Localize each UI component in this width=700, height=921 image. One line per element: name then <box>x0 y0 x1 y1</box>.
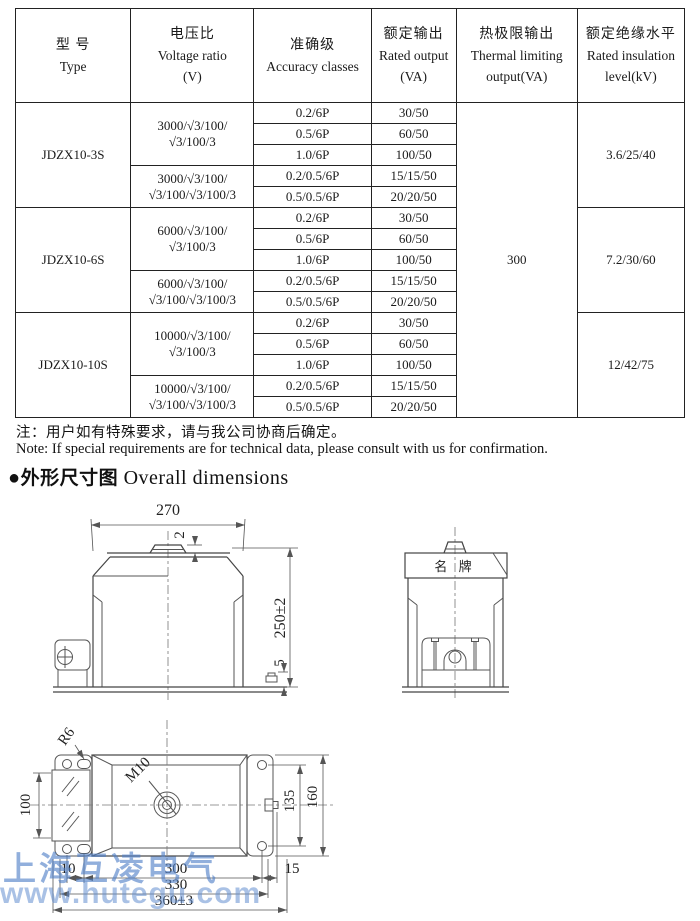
base-thickness-dimension: 5 <box>272 659 288 694</box>
accuracy-cell: 1.0/6P <box>254 145 371 166</box>
output-cell: 60/50 <box>371 229 456 250</box>
accuracy-cell: 1.0/6P <box>254 250 371 271</box>
svg-text:270: 270 <box>156 502 180 519</box>
dim-15: 15 <box>285 861 300 877</box>
spec-table: 型 号 Type 电压比 Voltage ratio (V) 准确级 Accur… <box>15 8 685 418</box>
accuracy-cell: 0.2/6P <box>254 208 371 229</box>
table-row: JDZX10-6S6000/√3/100/√3/100/30.2/6P30/50… <box>16 208 685 229</box>
type-cell: JDZX10-10S <box>16 313 131 418</box>
svg-text:2: 2 <box>172 531 188 539</box>
right-mounting-plate <box>247 755 278 856</box>
table-row: JDZX10-10S10000/√3/100/√3/100/30.2/6P30/… <box>16 313 685 334</box>
datasheet-page: 型 号 Type 电压比 Voltage ratio (V) 准确级 Accur… <box>0 0 700 921</box>
type-cell: JDZX10-3S <box>16 103 131 208</box>
transformer-front-body <box>53 545 287 692</box>
section-title-en: Overall dimensions <box>118 467 289 489</box>
svg-text:100: 100 <box>18 794 34 817</box>
corner-radius-dimension: R6 <box>55 725 84 759</box>
accuracy-cell: 0.5/0.5/6P <box>254 292 371 313</box>
dim-300: 300 <box>165 861 188 877</box>
accuracy-cell: 0.5/0.5/6P <box>254 397 371 418</box>
front-view-drawing: 270 <box>40 495 310 730</box>
accuracy-cell: 0.2/0.5/6P <box>254 166 371 187</box>
output-cell: 30/50 <box>371 313 456 334</box>
header-accuracy: 准确级 Accuracy classes <box>254 9 371 103</box>
ratio-cell: 10000/√3/100/√3/100/√3/100/3 <box>131 376 254 418</box>
accuracy-cell: 0.5/6P <box>254 334 371 355</box>
svg-text:5: 5 <box>272 659 288 667</box>
ratio-cell: 6000/√3/100/√3/100/√3/100/3 <box>131 271 254 313</box>
svg-text:160: 160 <box>305 786 321 809</box>
terminal-box <box>422 638 490 687</box>
type-cell: JDZX10-6S <box>16 208 131 313</box>
svg-text:250±2: 250±2 <box>272 598 289 639</box>
accuracy-cell: 0.2/6P <box>254 313 371 334</box>
dim-10: 10 <box>61 861 76 877</box>
accuracy-cell: 1.0/6P <box>254 355 371 376</box>
header-type-en: Type <box>18 56 128 77</box>
output-cell: 100/50 <box>371 250 456 271</box>
output-cell: 15/15/50 <box>371 271 456 292</box>
terminal-block-top <box>52 770 90 841</box>
accuracy-cell: 0.2/6P <box>254 103 371 124</box>
ratio-cell: 6000/√3/100/√3/100/3 <box>131 208 254 271</box>
header-voltage-ratio: 电压比 Voltage ratio (V) <box>131 9 254 103</box>
hole-span-dimension: 135 <box>268 765 306 846</box>
section-title: ●外形尺寸图 Overall dimensions <box>8 463 289 490</box>
header-insulation: 额定绝缘水平 Rated insulation level(kV) <box>577 9 684 103</box>
note-en: Note: If special requirements are for te… <box>16 441 548 458</box>
output-cell: 20/20/50 <box>371 292 456 313</box>
output-cell: 100/50 <box>371 355 456 376</box>
m10-bolt <box>149 781 180 818</box>
output-cell: 100/50 <box>371 145 456 166</box>
terminal-width-dimension: 100 <box>18 773 51 838</box>
accuracy-cell: 0.5/6P <box>254 124 371 145</box>
accuracy-cell: 0.5/6P <box>254 229 371 250</box>
accuracy-cell: 0.5/0.5/6P <box>254 187 371 208</box>
output-cell: 30/50 <box>371 103 456 124</box>
insulation-cell: 3.6/25/40 <box>577 103 684 208</box>
ratio-cell: 3000/√3/100/√3/100/3 <box>131 103 254 166</box>
output-cell: 20/20/50 <box>371 187 456 208</box>
dim-330: 330 <box>165 877 188 893</box>
spec-table-body: JDZX10-3S3000/√3/100/√3/100/30.2/6P30/50… <box>16 103 685 418</box>
insulation-cell: 7.2/30/60 <box>577 208 684 313</box>
output-cell: 15/15/50 <box>371 166 456 187</box>
ratio-cell: 3000/√3/100/√3/100/√3/100/3 <box>131 166 254 208</box>
accuracy-cell: 0.2/0.5/6P <box>254 271 371 292</box>
nameplate-label: 名 牌 <box>434 559 475 574</box>
svg-text:R6: R6 <box>55 725 78 749</box>
note-zh: 注：用户如有特殊要求，请与我公司协商后确定。 <box>16 421 346 442</box>
section-title-zh: 外形尺寸图 <box>21 468 119 489</box>
output-cell: 15/15/50 <box>371 376 456 397</box>
side-view-drawing: 名 牌 <box>390 520 615 705</box>
cap-height-dimension: 2 <box>172 531 202 560</box>
header-type-zh: 型 号 <box>18 35 128 56</box>
table-row: JDZX10-3S3000/√3/100/√3/100/30.2/6P30/50… <box>16 103 685 124</box>
dim-360: 360±3 <box>155 893 193 909</box>
header-row: 型 号 Type 电压比 Voltage ratio (V) 准确级 Accur… <box>16 9 685 103</box>
header-type: 型 号 Type <box>16 9 131 103</box>
output-cell: 60/50 <box>371 334 456 355</box>
base-bolt <box>266 673 277 682</box>
svg-text:135: 135 <box>282 790 298 813</box>
plan-view-drawing: M10 R6 100 135 <box>18 713 363 921</box>
header-thermal-output: 热极限输出 Thermal limiting output(VA) <box>456 9 577 103</box>
output-cell: 60/50 <box>371 124 456 145</box>
bullet-icon: ● <box>8 467 21 489</box>
accuracy-cell: 0.2/0.5/6P <box>254 376 371 397</box>
thermal-cell: 300 <box>456 103 577 418</box>
front-height-dimension: 250±2 <box>232 548 298 687</box>
ratio-cell: 10000/√3/100/√3/100/3 <box>131 313 254 376</box>
mounting-lug <box>55 640 90 687</box>
output-cell: 20/20/50 <box>371 397 456 418</box>
insulation-cell: 12/42/75 <box>577 313 684 418</box>
output-cell: 30/50 <box>371 208 456 229</box>
header-rated-output: 额定输出 Rated output (VA) <box>371 9 456 103</box>
